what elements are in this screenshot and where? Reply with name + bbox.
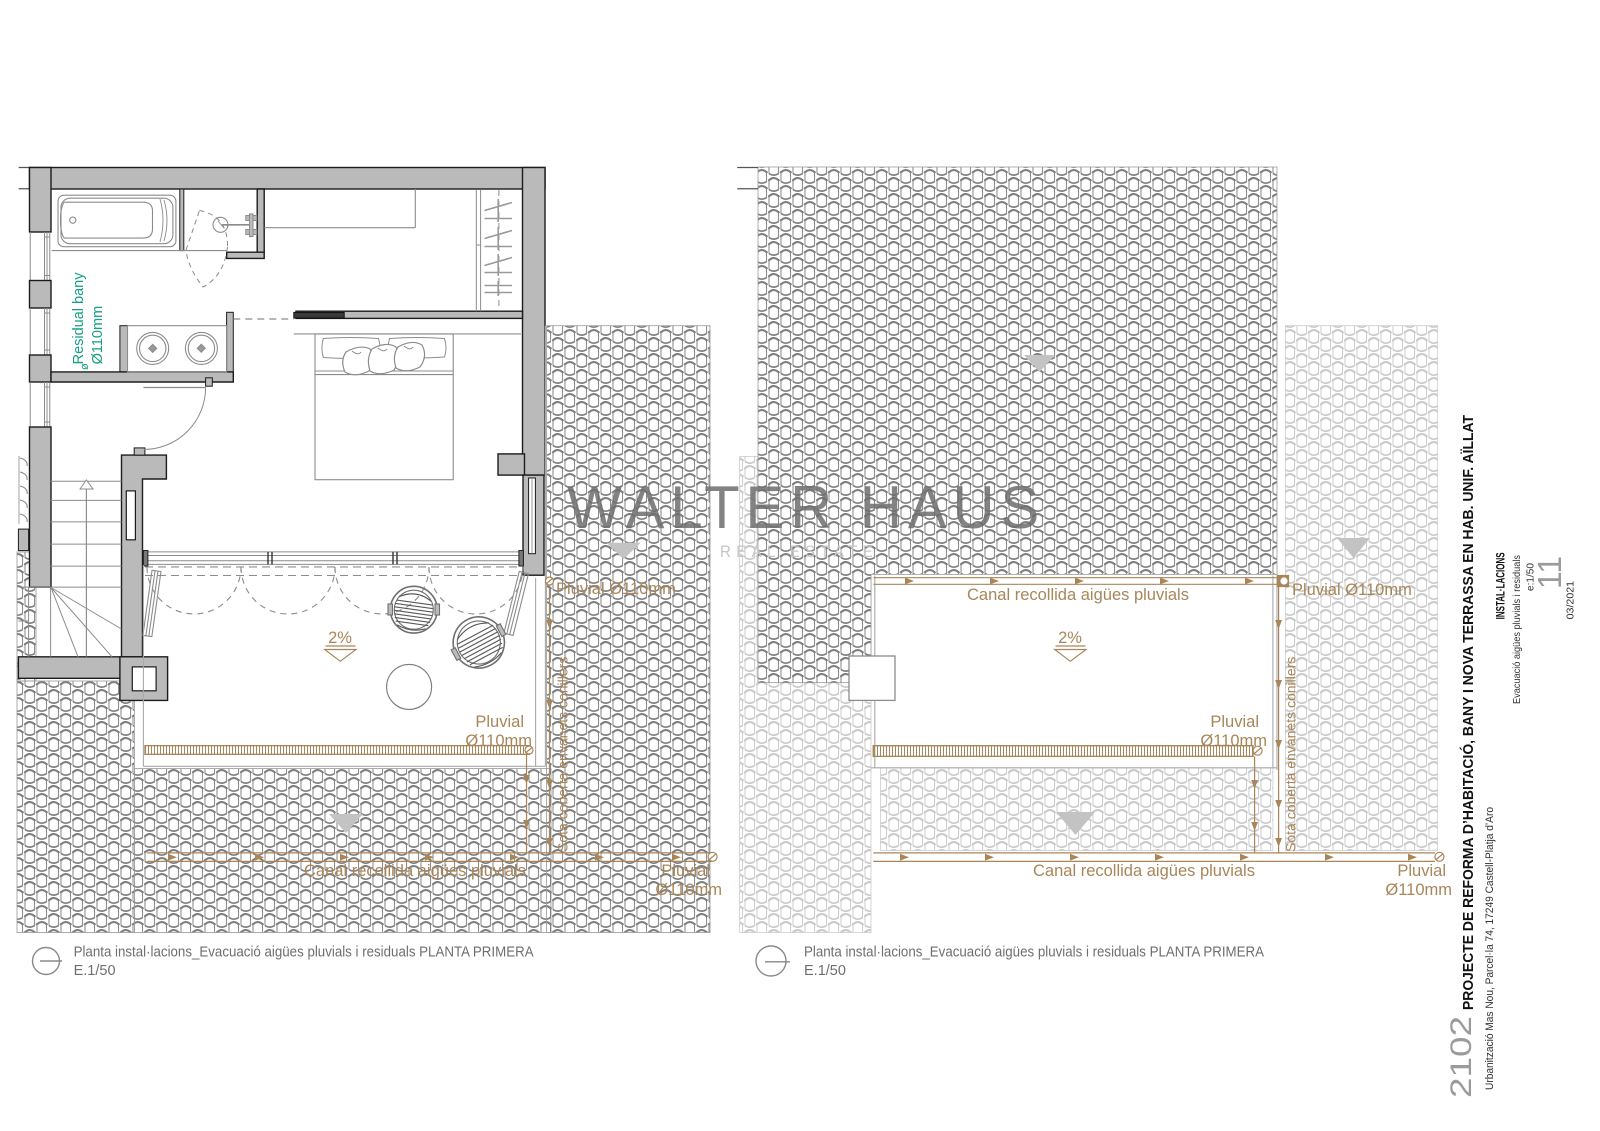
svg-text:Canal recollida aigües pluvial: Canal recollida aigües pluvials [1033,862,1255,880]
svg-text:E.1/50: E.1/50 [804,963,846,979]
svg-text:03/2021: 03/2021 [1565,581,1577,620]
svg-text:Canal recollida aigües pluvial: Canal recollida aigües pluvials [304,862,526,880]
svg-text:Evacuació aigües pluvials i re: Evacuació aigües pluvials i residuals [1511,555,1523,704]
svg-text:REAL ESTATE: REAL ESTATE [720,542,878,561]
svg-text:PROJECTE DE REFORMA D’HABITACI: PROJECTE DE REFORMA D’HABITACIÓ, BANY I … [1459,415,1477,1010]
svg-text:Sota coberta envanets coniller: Sota coberta envanets conillers [555,657,571,852]
svg-text:2%: 2% [1058,629,1082,647]
svg-text:Ø110mm: Ø110mm [465,732,532,750]
svg-text:Pluvial: Pluvial [661,862,710,880]
svg-text:Pluvial Ø110mm: Pluvial Ø110mm [556,580,676,598]
svg-text:Pluvial: Pluvial [1397,862,1446,880]
svg-text:Sota coberta envanets coniller: Sota coberta envanets conillers [1283,657,1299,852]
svg-text:Planta instal·lacions_Evacuaci: Planta instal·lacions_Evacuació aigües p… [74,945,534,961]
svg-text:2102: 2102 [1445,1016,1478,1098]
svg-text:INSTAL·LACIONS: INSTAL·LACIONS [1496,552,1508,619]
svg-text:Planta instal·lacions_Evacuaci: Planta instal·lacions_Evacuació aigües p… [804,945,1264,961]
svg-text:Canal recollida aigües pluvial: Canal recollida aigües pluvials [967,586,1189,604]
svg-text:Ø110mm: Ø110mm [1385,881,1452,899]
svg-text:Ø110mm: Ø110mm [1200,732,1267,750]
svg-text:Pluvial Ø110mm: Pluvial Ø110mm [1292,581,1412,599]
svg-text:Ø110mm: Ø110mm [90,306,106,365]
svg-text:ø: ø [79,363,91,370]
svg-text:2%: 2% [328,629,352,647]
svg-text:11: 11 [1531,556,1568,589]
svg-text:Pluvial: Pluvial [475,713,524,731]
svg-text:Urbanització Mas Nou, Parcel·l: Urbanització Mas Nou, Parcel·la 74, 1724… [1484,807,1496,1090]
svg-text:E.1/50: E.1/50 [74,963,116,979]
svg-text:Pluvial: Pluvial [1210,713,1259,731]
svg-text:Ø110mm: Ø110mm [655,881,722,899]
svg-text:WALTER HAUS: WALTER HAUS [567,474,1045,541]
svg-text:Residual bany: Residual bany [71,272,87,365]
